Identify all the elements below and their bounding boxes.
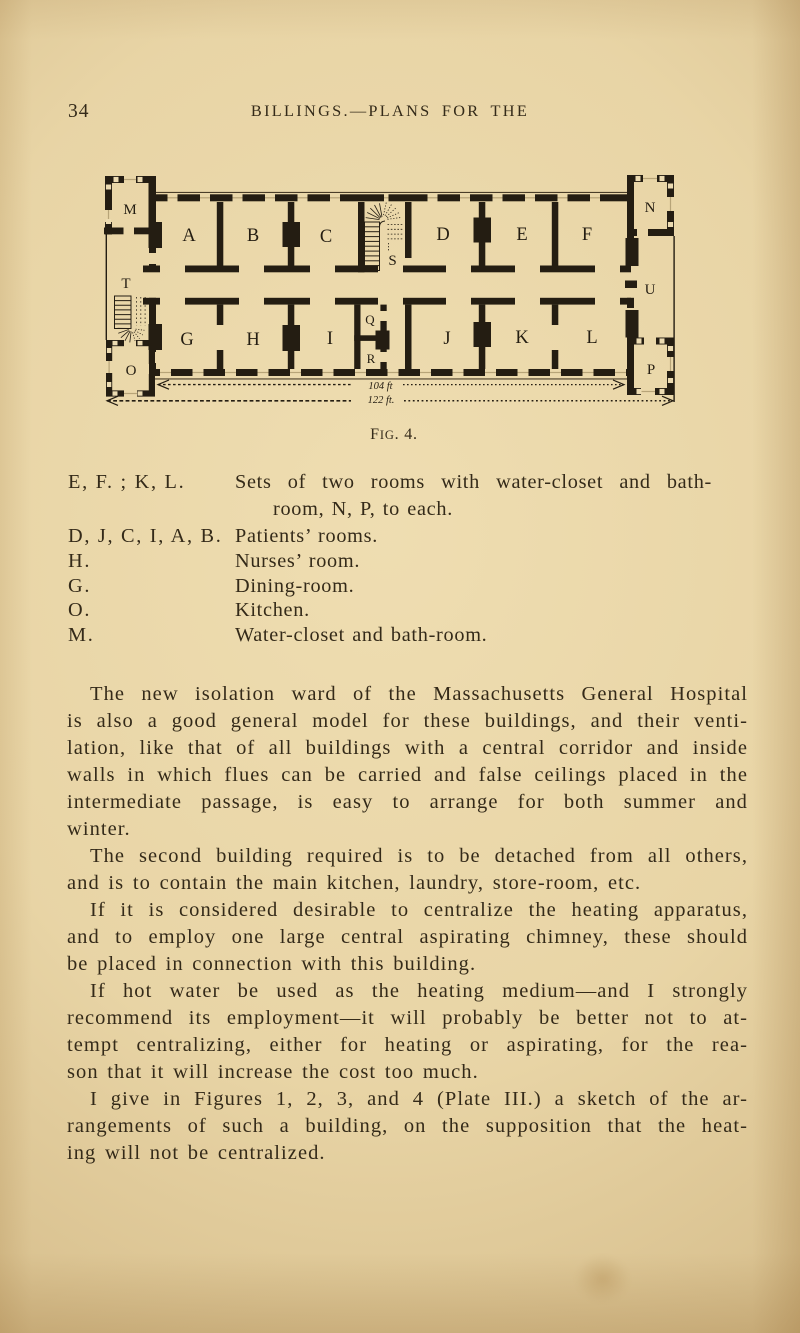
svg-text:C: C [320,227,332,247]
svg-text:F: F [582,225,592,245]
svg-text:104 ft: 104 ft [368,381,393,392]
svg-text:H: H [246,330,259,350]
svg-text:D: D [436,225,449,245]
svg-text:I: I [327,329,333,349]
svg-text:122 ft.: 122 ft. [368,395,395,406]
svg-text:E: E [516,225,527,245]
svg-text:N: N [645,200,656,216]
svg-text:R: R [367,351,376,366]
svg-text:B: B [247,226,259,246]
svg-text:K: K [515,328,529,348]
svg-text:U: U [645,282,656,298]
svg-text:M: M [123,202,136,218]
svg-text:A: A [182,226,196,246]
svg-text:T: T [121,276,130,292]
svg-text:Q: Q [365,312,375,327]
svg-text:G: G [180,330,193,350]
svg-text:S: S [388,253,396,269]
svg-text:P: P [647,362,655,378]
svg-text:L: L [586,328,597,348]
svg-text:J: J [443,329,450,349]
svg-text:O: O [126,363,137,379]
